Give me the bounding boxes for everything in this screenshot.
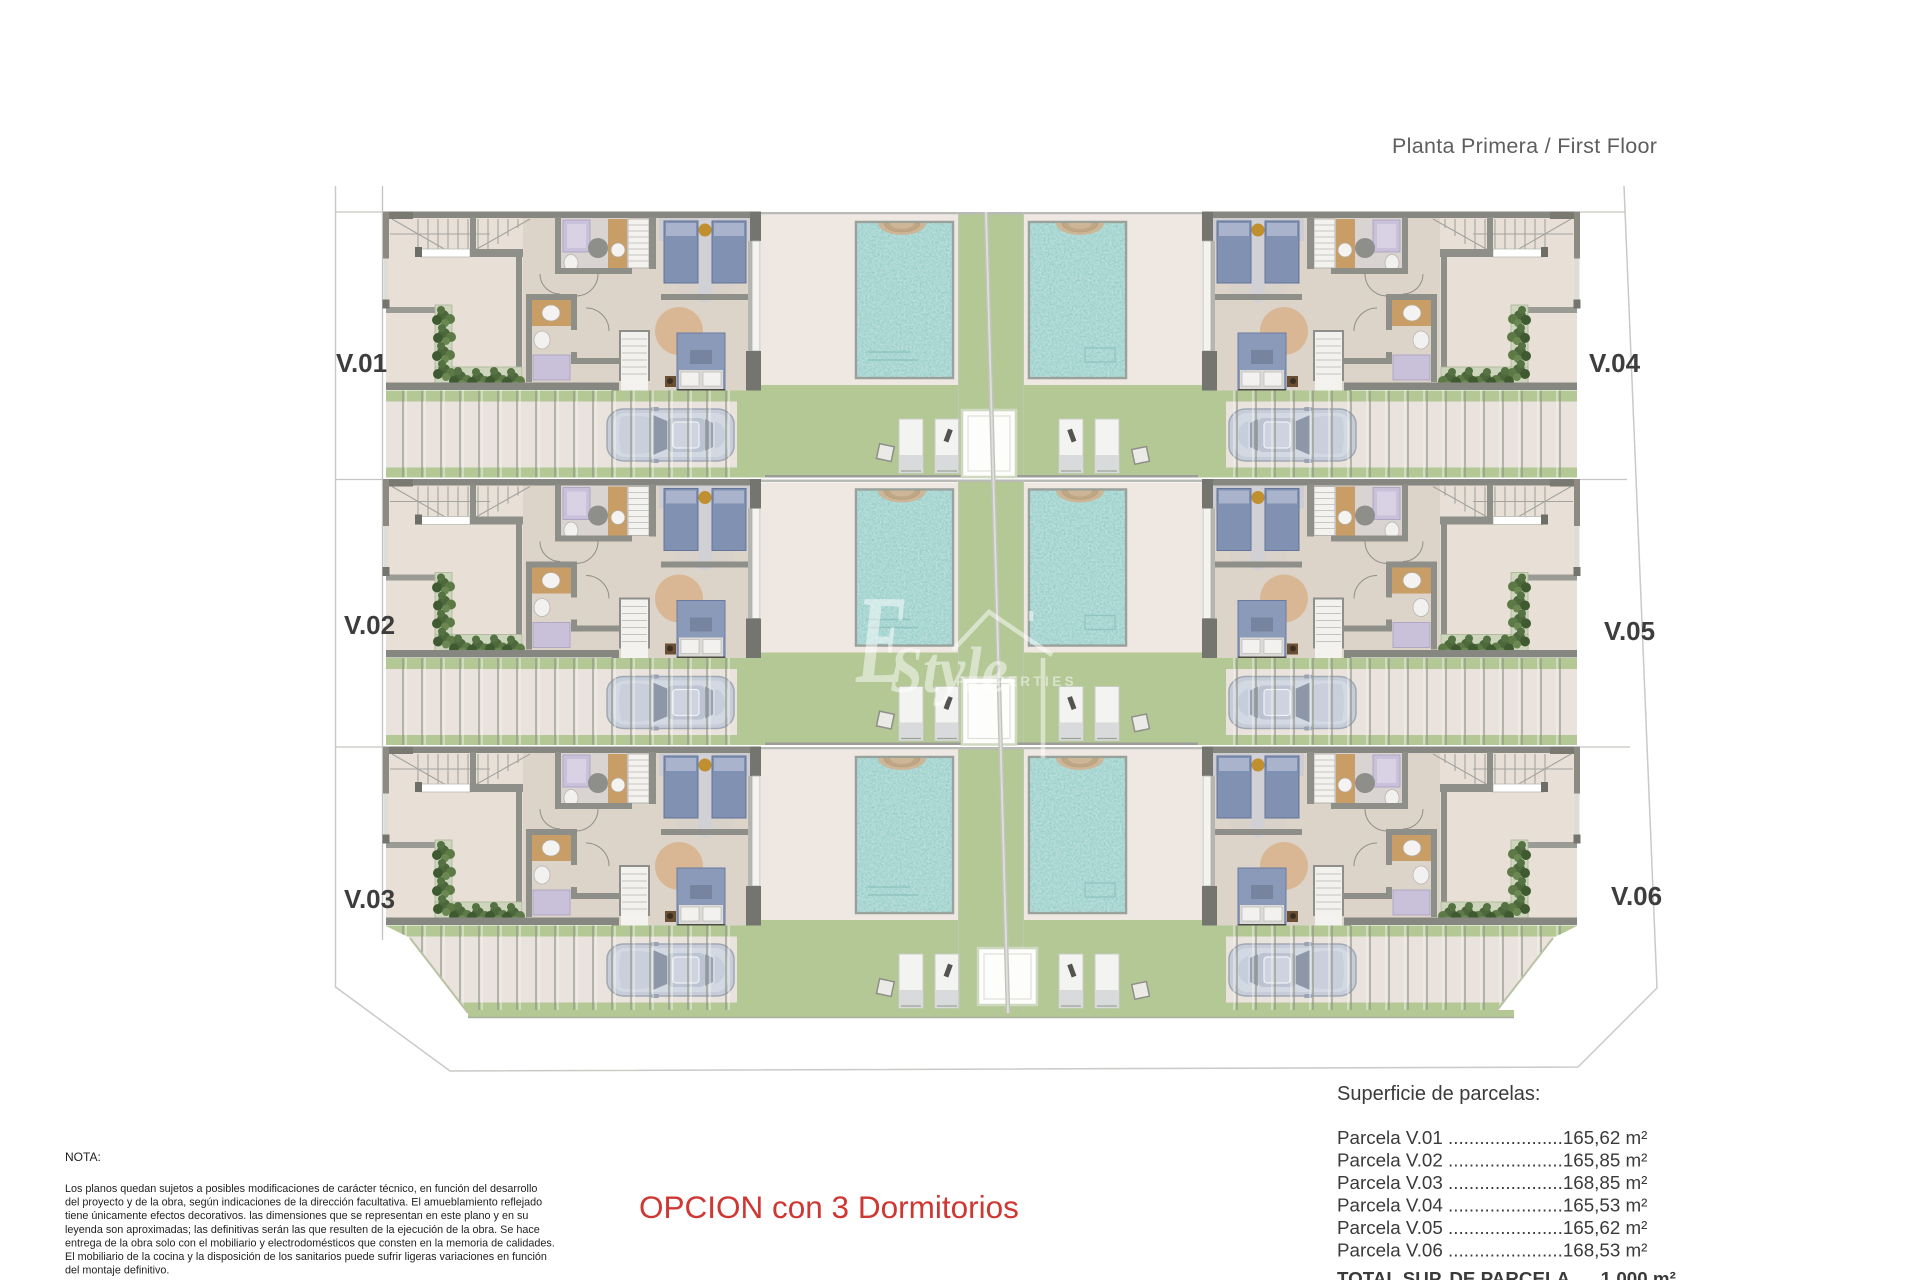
svg-text:OPCION con 3 Dormitorios: OPCION con 3 Dormitorios	[639, 1189, 1019, 1225]
svg-text:Planta Primera / First Floor: Planta Primera / First Floor	[1392, 134, 1657, 158]
svg-text:Parcela V.01 ................: Parcela V.01 ......................165,6…	[1337, 1127, 1647, 1148]
svg-text:V.06: V.06	[1611, 881, 1662, 911]
svg-text:tiene únicamente efectos decor: tiene únicamente efectos decorativos. la…	[65, 1210, 528, 1222]
svg-text:PROPERTIES: PROPERTIES	[956, 674, 1077, 689]
svg-text:V.05: V.05	[1604, 616, 1655, 646]
svg-text:V.04: V.04	[1589, 348, 1641, 378]
svg-text:Los planos quedan sujetos a po: Los planos quedan sujetos a posibles mod…	[65, 1183, 537, 1195]
svg-text:El mobiliario de la cocina y l: El mobiliario de la cocina y la disposic…	[65, 1251, 547, 1263]
svg-text:del montaje definitivo.: del montaje definitivo.	[65, 1265, 169, 1277]
svg-text:Parcela V.06 ................: Parcela V.06 ......................168,5…	[1337, 1240, 1647, 1261]
svg-text:del proyecto y de la obra, seg: del proyecto y de la obra, según indicac…	[65, 1197, 542, 1209]
svg-text:leyenda son aproximadas; las d: leyenda son aproximadas; las definitivas…	[65, 1224, 540, 1236]
svg-text:V.02: V.02	[344, 610, 395, 640]
svg-text:Style: Style	[890, 634, 1008, 707]
svg-text:Superficie de parcelas:: Superficie de parcelas:	[1337, 1083, 1540, 1105]
svg-text:entrega de la obra solo con el: entrega de la obra solo con el mobiliari…	[65, 1237, 555, 1249]
svg-text:Parcela V.02 ................: Parcela V.02 ......................165,8…	[1337, 1150, 1647, 1171]
svg-text:NOTA:: NOTA:	[65, 1150, 101, 1164]
svg-text:TOTAL SUP. DE PARCELA .....1.0: TOTAL SUP. DE PARCELA .....1.000 m²	[1337, 1268, 1676, 1280]
svg-text:Parcela V.05 ................: Parcela V.05 ......................165,6…	[1337, 1217, 1647, 1238]
svg-text:V.03: V.03	[344, 884, 395, 914]
svg-text:Parcela V.04 ................: Parcela V.04 ......................165,5…	[1337, 1195, 1647, 1216]
svg-text:Parcela V.03 ................: Parcela V.03 ......................168,8…	[1337, 1172, 1647, 1193]
svg-text:V.01: V.01	[336, 348, 387, 378]
